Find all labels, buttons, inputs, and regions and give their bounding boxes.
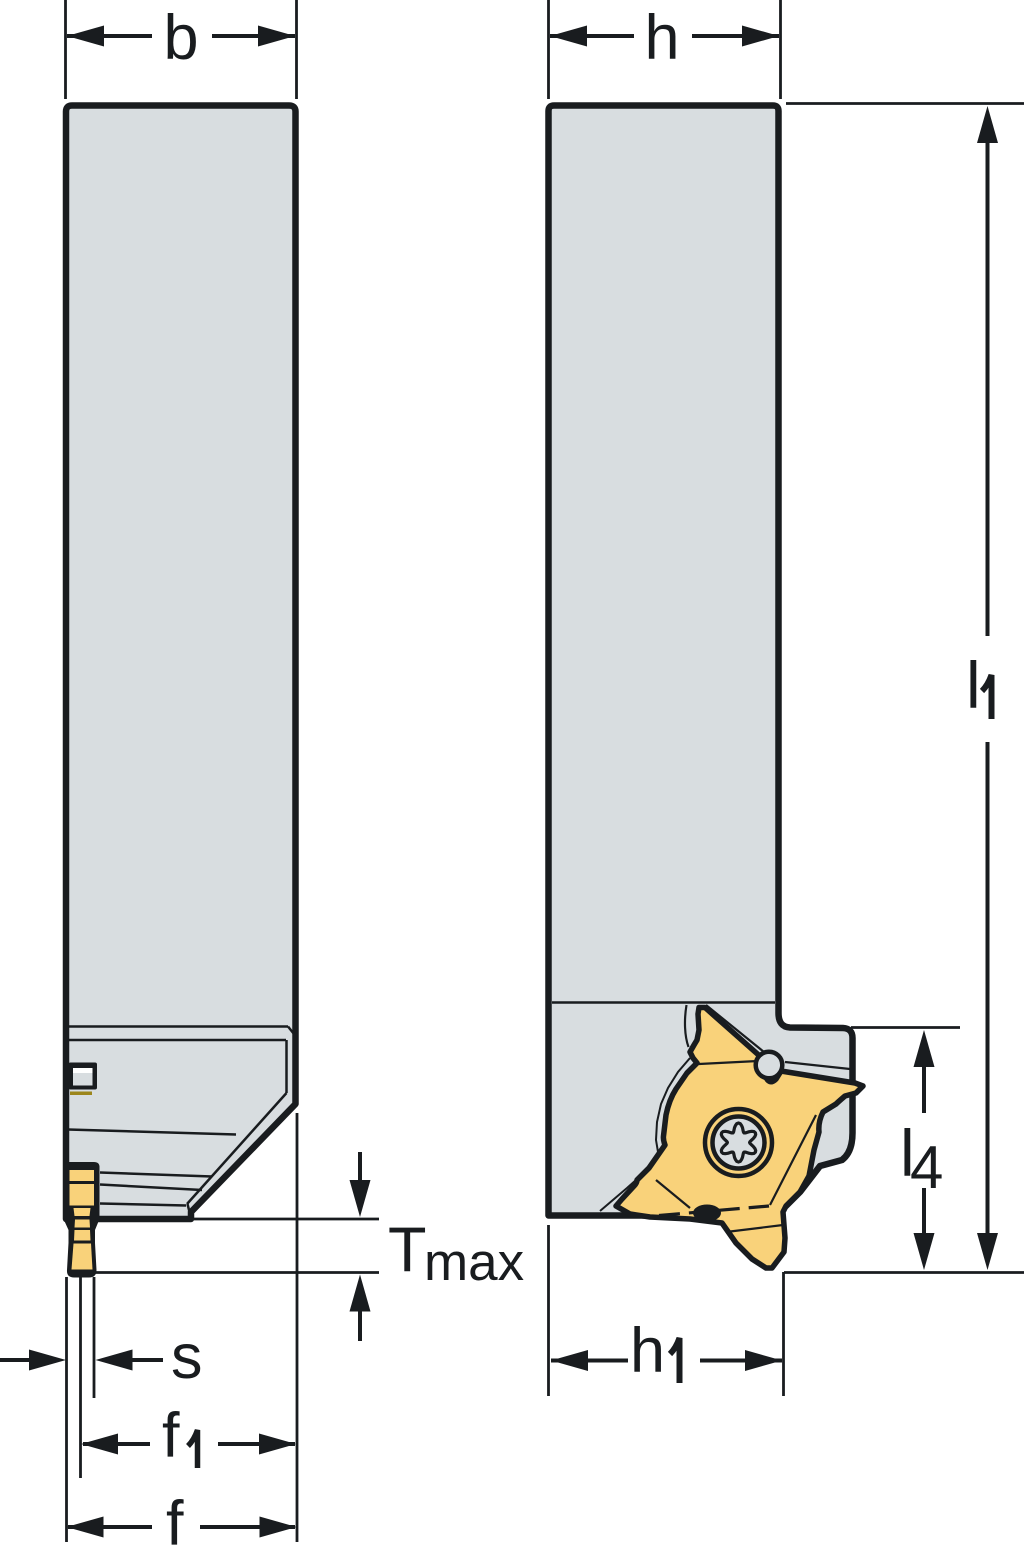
svg-text:h: h	[630, 1316, 665, 1386]
svg-text:4: 4	[910, 1134, 943, 1201]
svg-text:f: f	[162, 1401, 180, 1471]
svg-text:l: l	[966, 648, 981, 722]
svg-text:T: T	[388, 1215, 426, 1285]
svg-text:f: f	[166, 1489, 184, 1559]
svg-text:b: b	[163, 3, 198, 73]
svg-text:max: max	[424, 1233, 524, 1292]
svg-text:h: h	[644, 3, 679, 73]
svg-text:s: s	[171, 1322, 203, 1392]
